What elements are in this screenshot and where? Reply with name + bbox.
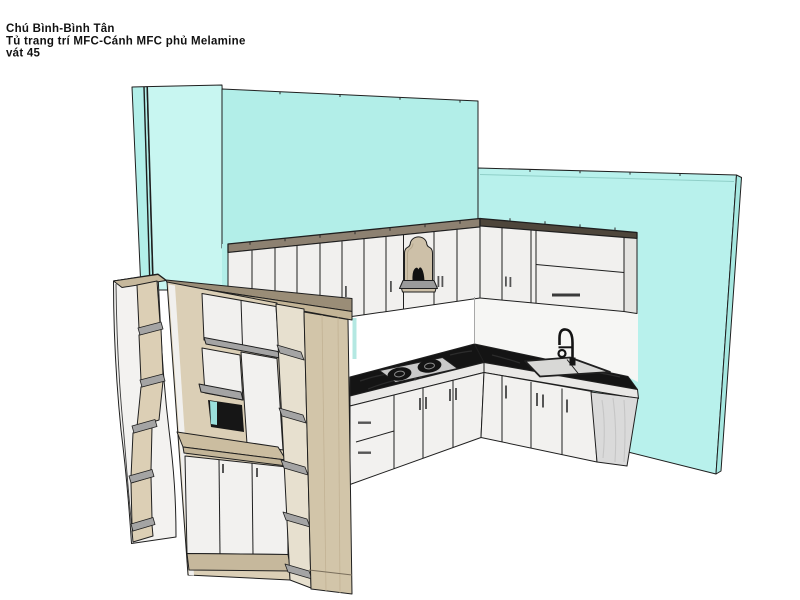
svg-text:vát 45: vát 45 xyxy=(6,48,41,60)
svg-text:Tủ trang trí MFC-Cánh MFC phủ: Tủ trang trí MFC-Cánh MFC phủ Melamine xyxy=(6,36,246,48)
svg-text:Chú Bình-Bình Tân: Chú Bình-Bình Tân xyxy=(6,23,115,35)
